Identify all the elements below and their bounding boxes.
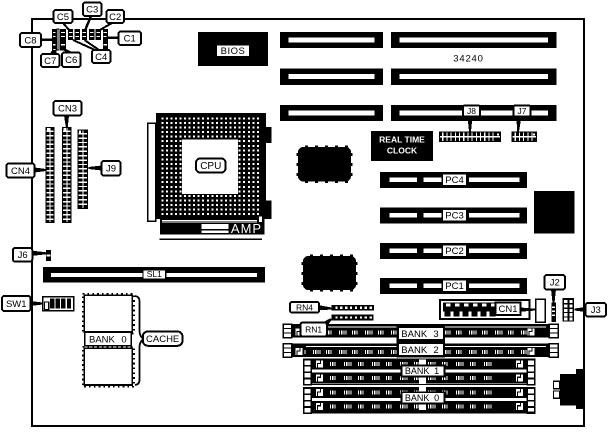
- svg-text:C3: C3: [86, 5, 98, 16]
- svg-text:0: 0: [434, 393, 439, 403]
- svg-text:J2: J2: [550, 278, 560, 289]
- svg-text:BANK: BANK: [401, 329, 428, 340]
- svg-text:RN4: RN4: [296, 302, 313, 312]
- svg-text:C8: C8: [24, 35, 36, 46]
- svg-text:3: 3: [433, 329, 438, 340]
- svg-text:2: 2: [433, 345, 438, 356]
- svg-text:C6: C6: [65, 55, 77, 66]
- svg-text:C4: C4: [95, 52, 107, 63]
- svg-text:BIOS: BIOS: [221, 46, 246, 57]
- svg-text:34240: 34240: [453, 54, 483, 65]
- svg-text:REAL TIME: REAL TIME: [379, 135, 425, 145]
- svg-text:PC3: PC3: [445, 210, 463, 221]
- svg-text:AMP: AMP: [231, 221, 262, 236]
- svg-text:J3: J3: [591, 305, 601, 316]
- svg-text:CN1: CN1: [498, 304, 517, 315]
- svg-text:PC4: PC4: [445, 175, 463, 186]
- svg-text:SL1: SL1: [147, 269, 162, 279]
- svg-text:C5: C5: [57, 12, 69, 23]
- svg-text:BANK: BANK: [401, 345, 428, 356]
- svg-text:C2: C2: [109, 12, 121, 23]
- svg-text:BANK: BANK: [89, 334, 116, 345]
- svg-text:CN4: CN4: [11, 166, 30, 177]
- svg-text:RN1: RN1: [305, 325, 322, 335]
- svg-text:C1: C1: [124, 34, 136, 45]
- svg-text:J9: J9: [106, 164, 116, 175]
- svg-text:PC2: PC2: [445, 246, 463, 257]
- svg-text:CACHE: CACHE: [146, 334, 179, 345]
- svg-text:PC1: PC1: [445, 281, 463, 292]
- svg-text:CLOCK: CLOCK: [387, 146, 418, 156]
- svg-text:0: 0: [121, 334, 126, 345]
- svg-text:SW1: SW1: [6, 299, 27, 310]
- svg-text:BANK: BANK: [405, 366, 430, 376]
- svg-text:J7: J7: [518, 106, 527, 116]
- svg-text:1: 1: [434, 366, 439, 376]
- svg-text:CN3: CN3: [58, 104, 77, 115]
- svg-text:J8: J8: [467, 106, 476, 116]
- svg-text:C7: C7: [44, 56, 56, 67]
- svg-text:J6: J6: [18, 250, 28, 261]
- svg-text:BANK: BANK: [405, 393, 430, 403]
- svg-text:CPU: CPU: [200, 161, 221, 172]
